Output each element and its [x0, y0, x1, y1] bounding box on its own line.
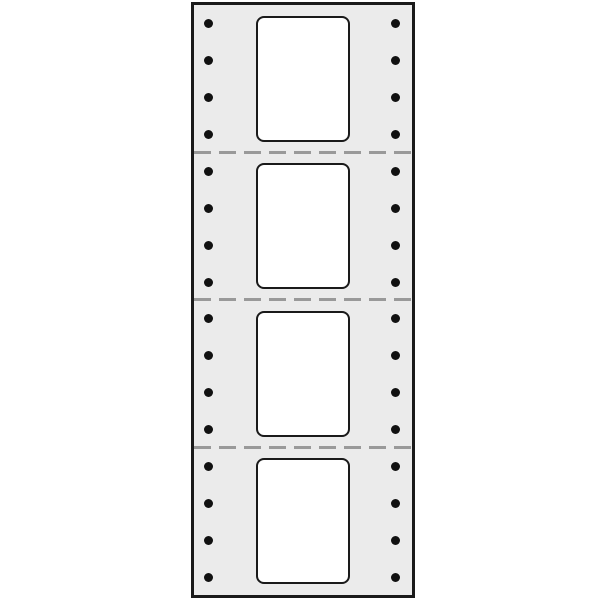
sprocket-hole [391, 314, 400, 323]
sprocket-hole-column-left [204, 314, 213, 435]
perforation-line [194, 151, 412, 154]
label-section-1 [194, 5, 412, 153]
sprocket-hole [391, 536, 400, 545]
sprocket-hole [204, 167, 213, 176]
sprocket-hole [391, 167, 400, 176]
sprocket-hole [204, 351, 213, 360]
sprocket-hole [391, 93, 400, 102]
label-section-3 [194, 300, 412, 448]
sprocket-hole-column-left [204, 462, 213, 583]
sprocket-hole [204, 130, 213, 139]
perforation-line [194, 298, 412, 301]
sprocket-hole-column-left [204, 19, 213, 140]
sprocket-hole [204, 425, 213, 434]
label-section-2 [194, 153, 412, 301]
sprocket-hole [391, 425, 400, 434]
sprocket-hole [391, 19, 400, 28]
sprocket-hole [391, 388, 400, 397]
sprocket-hole-column-right [391, 314, 400, 435]
sprocket-hole [391, 241, 400, 250]
sprocket-hole-column-right [391, 462, 400, 583]
sprocket-hole [391, 204, 400, 213]
sprocket-hole [391, 499, 400, 508]
sprocket-hole-column-right [391, 167, 400, 288]
sprocket-hole [391, 462, 400, 471]
sprocket-hole [391, 130, 400, 139]
sprocket-hole [391, 573, 400, 582]
sprocket-hole [391, 56, 400, 65]
sprocket-hole [204, 536, 213, 545]
sprocket-hole [204, 388, 213, 397]
continuous-form-paper [191, 2, 415, 598]
blank-label [256, 16, 350, 142]
sprocket-hole-column-left [204, 167, 213, 288]
blank-label [256, 163, 350, 289]
sprocket-hole [391, 278, 400, 287]
sprocket-hole [204, 499, 213, 508]
sprocket-hole [204, 573, 213, 582]
perforation-line [194, 446, 412, 449]
blank-label [256, 311, 350, 437]
sprocket-hole [204, 204, 213, 213]
sprocket-hole [391, 351, 400, 360]
illustration-canvas [0, 0, 600, 600]
sprocket-hole-column-right [391, 19, 400, 140]
sprocket-hole [204, 241, 213, 250]
label-section-4 [194, 448, 412, 596]
sprocket-hole [204, 314, 213, 323]
blank-label [256, 458, 350, 584]
sprocket-hole [204, 56, 213, 65]
sprocket-hole [204, 19, 213, 28]
sprocket-hole [204, 93, 213, 102]
sprocket-hole [204, 462, 213, 471]
sprocket-hole [204, 278, 213, 287]
